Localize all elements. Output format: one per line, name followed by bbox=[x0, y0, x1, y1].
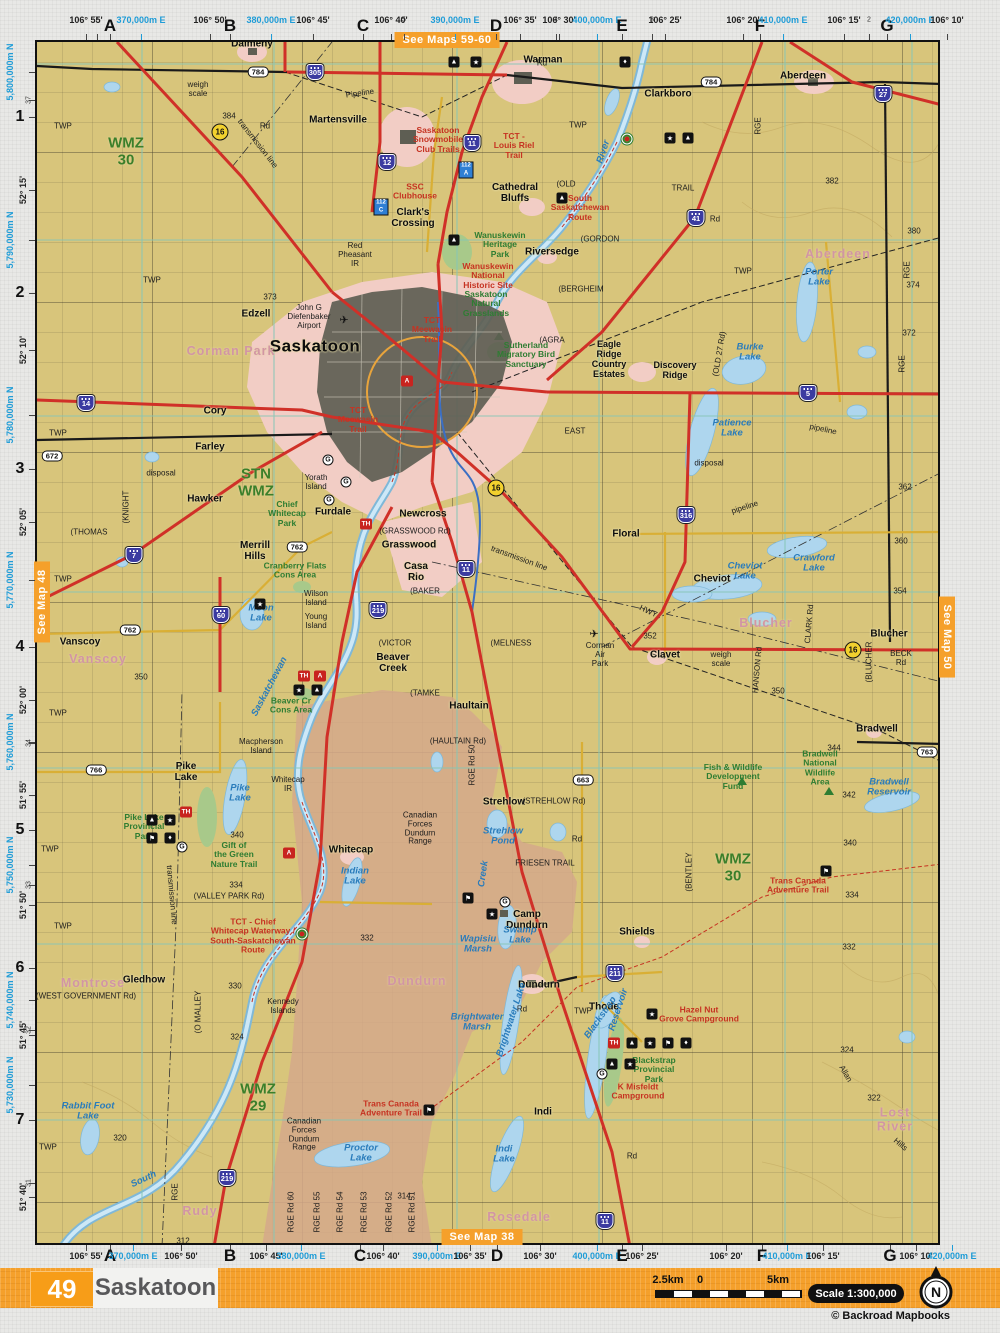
road-label: TWP bbox=[734, 268, 752, 277]
park-label: Cranberry Flats Cons Area bbox=[264, 562, 327, 581]
road-label: (HAULTAIN Rd) bbox=[430, 738, 486, 747]
road-label: TWP bbox=[49, 710, 67, 719]
grid-col-label: D bbox=[491, 1246, 503, 1266]
grid-utm-label: 410,000m E bbox=[758, 15, 807, 25]
grid-col-label: E bbox=[616, 1246, 627, 1266]
town-label: Pike Lake bbox=[175, 761, 198, 783]
poi-icon: ▲ bbox=[449, 235, 460, 246]
grid-deg-label: 52° 05' bbox=[18, 508, 28, 536]
grid-deg-label: 106° 45' bbox=[296, 15, 329, 25]
grid-utm-label: 370,000m E bbox=[116, 15, 165, 25]
road-label: (OLD bbox=[556, 181, 575, 190]
town-label: Vanscoy bbox=[60, 637, 101, 648]
grid-col-label: A bbox=[104, 1246, 116, 1266]
region-label: Vanscoy bbox=[69, 653, 127, 667]
grid-col-label: B bbox=[224, 1246, 236, 1266]
grid-col-label: E bbox=[616, 16, 627, 36]
road-label: TWP bbox=[54, 923, 72, 932]
grid-deg-label: 106° 40' bbox=[366, 1251, 399, 1261]
highway-shield-11: 11 bbox=[464, 135, 481, 151]
wmz-label: STN WMZ bbox=[238, 467, 274, 500]
trailhead-icon: A bbox=[314, 671, 326, 682]
town-label: Indi bbox=[534, 1107, 552, 1118]
grid-deg-label: 106° 25' bbox=[648, 15, 681, 25]
see-map-link-right[interactable]: See Map 50 bbox=[939, 597, 955, 678]
wmz-label: WMZ 29 bbox=[240, 1082, 276, 1115]
road-label: (AGRA bbox=[539, 337, 564, 346]
grid-utm-label: 5,750,000m N bbox=[5, 836, 15, 893]
num-label: 380 bbox=[907, 228, 920, 237]
water-label: Indian Lake bbox=[341, 867, 369, 888]
tct-marker-icon bbox=[296, 928, 309, 941]
wmz-label: WMZ 30 bbox=[108, 136, 144, 169]
poi-icon: ⚑ bbox=[147, 833, 158, 844]
road-label: weigh scale bbox=[711, 651, 732, 669]
road-label: RGE Rd 53 bbox=[361, 1192, 370, 1233]
num-label: 334 bbox=[229, 882, 242, 891]
trailhead-icon: A bbox=[283, 848, 295, 859]
poi-icon: ★ bbox=[625, 1059, 636, 1070]
scalebar-label-right: 5km bbox=[767, 1274, 789, 1286]
road-label: (BERGHEIM bbox=[558, 286, 603, 295]
road-label: (O MALLEY bbox=[195, 991, 204, 1034]
scale-bar bbox=[655, 1290, 802, 1298]
highway-shield-16: 16 bbox=[488, 480, 505, 497]
trail-label: TCT Meewasin Trail bbox=[338, 406, 378, 434]
town-label: Haultain bbox=[449, 701, 488, 712]
townsm-label: Discovery Ridge bbox=[653, 361, 696, 381]
water-label: Porter Lake bbox=[805, 268, 833, 289]
road-label: (WEST GOVERNMENT Rd) bbox=[36, 993, 136, 1002]
poi-icon: ★ bbox=[645, 1038, 656, 1049]
road-label: (VICTOR bbox=[379, 640, 412, 649]
grid-deg-label: 51° 50' bbox=[18, 891, 28, 919]
road-label: RGE bbox=[904, 261, 913, 278]
north-letter: N bbox=[931, 1284, 941, 1300]
num-label: 332 bbox=[842, 944, 855, 953]
margin-top: 106° 55'A370,000m E106° 50'B380,000m E10… bbox=[0, 0, 1000, 40]
poi-icon: ★ bbox=[294, 685, 305, 696]
margin-bottom: 106° 55'A370,000m E106° 50'B106° 45'380,… bbox=[0, 1245, 1000, 1268]
grid-sm-label: 5 bbox=[402, 17, 406, 24]
road-label: Kennedy Islands bbox=[267, 998, 299, 1016]
grid-col-label: F bbox=[755, 16, 765, 36]
park-label: Bradwell National Wildlife Area bbox=[802, 749, 837, 786]
water-label: Proctor Lake bbox=[344, 1144, 378, 1165]
trailhead-icon: TH bbox=[360, 519, 372, 530]
num-label: 340 bbox=[843, 840, 856, 849]
road-label: RGE Rd 55 bbox=[314, 1192, 323, 1233]
copyright: © Backroad Mapbooks bbox=[831, 1310, 950, 1322]
park-label: Beaver Cr Cons Area bbox=[270, 697, 312, 716]
road-label: Rd bbox=[260, 123, 270, 132]
grid-col-label: G bbox=[880, 16, 893, 36]
golf-icon: G bbox=[323, 455, 334, 466]
north-compass: N bbox=[916, 1266, 956, 1310]
road-label: Hills bbox=[891, 1137, 908, 1153]
highway-shield-16: 16 bbox=[212, 124, 229, 141]
road-label: TWP bbox=[41, 846, 59, 855]
town-label: Camp Dundurn bbox=[506, 909, 548, 931]
trailhead-icon: A bbox=[401, 376, 413, 387]
grid-deg-label: 106° 15' bbox=[806, 1251, 839, 1261]
road-label: (GRASSWOOD Rd) bbox=[379, 528, 451, 537]
trail-label: Wanuskewin National Historic Site bbox=[462, 262, 513, 290]
poi-icon: ♦ bbox=[165, 833, 176, 844]
grid-utm-label: 5,760,000m N bbox=[5, 713, 15, 770]
park-label: Fish & Wildlife Development Fund bbox=[704, 763, 762, 791]
num-label: 312 bbox=[176, 1238, 189, 1245]
highway-shield-672: 672 bbox=[42, 451, 63, 462]
poi-icon: ▲ bbox=[607, 1059, 618, 1070]
road-label: RGE Rd 51 bbox=[409, 1192, 418, 1233]
grid-deg-label: 106° 55' bbox=[69, 1251, 102, 1261]
trail-label: TCT Meewasin Trail bbox=[412, 316, 452, 344]
num-label: 342 bbox=[842, 792, 855, 801]
town-label: Thode bbox=[589, 1002, 619, 1013]
grid-deg-label: 106° 30' bbox=[542, 15, 575, 25]
poi-icon: ▲ bbox=[627, 1038, 638, 1049]
grid-deg-label: 106° 10' bbox=[899, 1251, 932, 1261]
road-label: TWP bbox=[39, 1144, 57, 1153]
water-label: Moon Lake bbox=[248, 604, 273, 625]
poi-icon: ★ bbox=[165, 815, 176, 826]
road-label: Red Pheasant IR bbox=[338, 242, 372, 268]
grid-utm-label: 370,000m E bbox=[108, 1251, 157, 1261]
num-label: 322 bbox=[867, 1095, 880, 1104]
region-label: Rosedale bbox=[487, 1211, 551, 1225]
highway-shield-766: 766 bbox=[86, 765, 107, 776]
trail-label: South Saskatchewan Route bbox=[551, 194, 610, 222]
num-label: 352 bbox=[643, 633, 656, 642]
num-label: 354 bbox=[893, 588, 906, 597]
park-label: Chief Whitecap Park bbox=[268, 500, 306, 528]
grid-sm-label: 3 bbox=[650, 17, 654, 24]
road-label: Rd bbox=[710, 216, 720, 225]
water-label: Swamp Lake bbox=[503, 926, 536, 947]
region-label: Lost River bbox=[874, 1106, 917, 1134]
town-label: Beaver Creek bbox=[376, 652, 409, 674]
town-label: Farley bbox=[195, 442, 224, 453]
poi-icon: ▲ bbox=[683, 133, 694, 144]
town-label: Merrill Hills bbox=[240, 540, 270, 562]
road-label: pipeline bbox=[731, 500, 760, 517]
town-label: Clark's Crossing bbox=[391, 207, 434, 229]
town-label: Dundurn bbox=[518, 980, 560, 991]
trail-label: K Misfeldt Campground bbox=[612, 1083, 665, 1102]
grid-col-label: G bbox=[883, 1246, 896, 1266]
grid-sm-label: 32 bbox=[26, 1026, 33, 1034]
water-label: Patience Lake bbox=[712, 419, 751, 440]
poi-icon: ♦ bbox=[681, 1038, 692, 1049]
num-label: 372 bbox=[902, 330, 915, 339]
town-label: Clavet bbox=[650, 650, 680, 661]
grid-utm-label: 390,000m E bbox=[430, 15, 479, 25]
water-label: Saskatchewan bbox=[250, 656, 290, 719]
num-label: 340 bbox=[230, 832, 243, 841]
water-label: Rabbit Foot Lake bbox=[62, 1102, 115, 1123]
grid-deg-label: 51° 55' bbox=[18, 781, 28, 809]
road-label: HANSON Rd bbox=[752, 646, 765, 693]
num-label: 344 bbox=[827, 745, 840, 754]
highway-shield-784: 784 bbox=[248, 67, 269, 78]
trail-label: Saskatoon Snowmobile Club Trails bbox=[413, 126, 463, 154]
map-label-layer: DalmenyMartensvilleWarmanClarkboroAberde… bbox=[37, 42, 938, 1243]
highway-shield-305: 305 bbox=[307, 64, 324, 80]
highway-shield-784: 784 bbox=[701, 77, 722, 88]
scale-ratio: Scale 1:300,000 bbox=[815, 1288, 896, 1300]
road-label: Canadian Forces Dundurn Range bbox=[287, 1117, 321, 1152]
poi-icon: ★ bbox=[665, 133, 676, 144]
grid-sm-label: 7 bbox=[95, 17, 99, 24]
highway-shield-663: 663 bbox=[573, 775, 594, 786]
grid-deg-label: 52° 10' bbox=[18, 336, 28, 364]
poi-icon: ★ bbox=[487, 909, 498, 920]
road-label: Macpherson Island bbox=[239, 738, 283, 756]
town-label: Gledhow bbox=[123, 975, 165, 986]
grid-utm-label: 5,730,000m N bbox=[5, 1056, 15, 1113]
grid-row-label: 6 bbox=[16, 959, 25, 977]
num-label: 324 bbox=[840, 1047, 853, 1056]
road-label: RGE bbox=[899, 355, 908, 372]
highway-shield-11: 11 bbox=[597, 1213, 614, 1229]
grid-deg-label: 106° 50' bbox=[193, 15, 226, 25]
town-label: Cathedral Bluffs bbox=[492, 182, 538, 204]
grid-row-label: 1 bbox=[16, 108, 25, 126]
road-label: (THOMAS bbox=[71, 529, 108, 538]
grid-deg-label: 106° 50' bbox=[164, 1251, 197, 1261]
grid-sm-label: 31 bbox=[26, 1179, 33, 1187]
trail-label: Trans Canada Adventure Trail bbox=[767, 877, 829, 896]
road-label: TWP bbox=[143, 277, 161, 286]
highway-shield-219: 219 bbox=[219, 1170, 236, 1186]
park-label: Gift of the Green Nature Trail bbox=[211, 841, 258, 869]
town-label: Bradwell bbox=[856, 724, 898, 735]
grid-sm-label: 2 bbox=[867, 17, 871, 24]
num-label: 382 bbox=[825, 178, 838, 187]
road-label: Whitecap IR bbox=[271, 776, 304, 794]
trail-label: Trans Canada Adventure Trail bbox=[360, 1100, 422, 1119]
water-label: Indi Lake bbox=[493, 1145, 515, 1166]
road-label: (GORDON bbox=[581, 236, 620, 245]
road-label: BECK Rd bbox=[890, 650, 912, 668]
road-label: transmission line bbox=[490, 545, 549, 574]
trail-label: Hazel Nut Grove Campground bbox=[659, 1006, 739, 1025]
golf-icon: G bbox=[177, 842, 188, 853]
page-title: Saskatoon bbox=[95, 1274, 216, 1302]
town-label: Blucher bbox=[870, 629, 907, 640]
highway-shield-12: 12 bbox=[379, 154, 396, 170]
grid-utm-label: 5,790,000m N bbox=[5, 211, 15, 268]
grid-utm-label: 5,800,000m N bbox=[5, 43, 15, 100]
page-number: 49 bbox=[48, 1274, 77, 1305]
poi-icon: ⚑ bbox=[424, 1105, 435, 1116]
grid-deg-label: 52° 15' bbox=[18, 176, 28, 204]
highway-shield-5: 5 bbox=[800, 385, 817, 401]
road-label: TRAIL bbox=[672, 185, 695, 194]
trail-label: SSC Clubhouse bbox=[393, 183, 437, 202]
road-label: Rd bbox=[627, 1153, 637, 1162]
grid-deg-label: 106° 20' bbox=[709, 1251, 742, 1261]
road-label: RGE bbox=[172, 1183, 181, 1200]
town-label: Floral bbox=[612, 529, 639, 540]
park-label: Saskatoon Natural Grasslands bbox=[463, 290, 509, 318]
poi-icon: ★ bbox=[647, 1009, 658, 1020]
trail-label: TCT - Chief Whitecap Waterway / South-Sa… bbox=[210, 917, 296, 954]
water-label: Burke Lake bbox=[737, 343, 764, 364]
scalebar-label-zero: 0 bbox=[697, 1274, 703, 1286]
water-label: Reservoir bbox=[607, 988, 630, 1033]
highway-shield-7: 7 bbox=[126, 547, 143, 563]
road-label: weigh scale bbox=[188, 81, 209, 99]
margin-left: 5,800,000m N152° 15'5,790,000m N252° 10'… bbox=[0, 0, 35, 1245]
title-panel: Saskatoon bbox=[93, 1268, 218, 1308]
num-label: 374 bbox=[906, 282, 919, 291]
road-label: HWY bbox=[638, 604, 659, 620]
num-label: 314 bbox=[397, 1193, 410, 1202]
road-label: Young Island bbox=[305, 613, 327, 631]
road-label: TWP bbox=[569, 122, 587, 131]
grid-row-label: 3 bbox=[16, 460, 25, 478]
town-label: Newcross bbox=[399, 509, 446, 520]
road-label: TWP bbox=[54, 576, 72, 585]
trailhead-icon: TH bbox=[608, 1038, 620, 1049]
grid-utm-label: 410,000m E bbox=[762, 1251, 811, 1261]
poi-icon: ★ bbox=[471, 57, 482, 68]
poi-icon: ▲ bbox=[557, 193, 568, 204]
road-label: TWP bbox=[574, 1008, 592, 1017]
region-label: Rudy bbox=[182, 1205, 217, 1219]
grid-deg-label: 106° 25' bbox=[625, 1251, 658, 1261]
town-label: Whitecap bbox=[329, 845, 373, 856]
road-label: RGE Rd 50 bbox=[469, 745, 478, 786]
grid-deg-label: 106° 35' bbox=[503, 15, 536, 25]
road-label: Rd bbox=[572, 836, 582, 845]
road-label: Allan bbox=[837, 1064, 854, 1084]
region-label: Dundurn bbox=[387, 975, 446, 989]
grid-deg-label: 106° 10' bbox=[930, 15, 963, 25]
road-label: Yorath Island bbox=[305, 474, 328, 492]
grid-utm-label: 5,780,000m N bbox=[5, 386, 15, 443]
road-label: FRIESEN TRAIL bbox=[515, 860, 574, 869]
map-page: DalmenyMartensvilleWarmanClarkboroAberde… bbox=[35, 40, 940, 1245]
grid-utm-label: 380,000m E bbox=[276, 1251, 325, 1261]
townsm-label: Eagle Ridge Country Estates bbox=[592, 340, 627, 380]
highway-shield-14: 14 bbox=[78, 395, 95, 411]
poi-icon: ⚑ bbox=[821, 866, 832, 877]
road-label: (BENTLEY bbox=[686, 852, 695, 891]
town-label: Cheviot bbox=[694, 574, 731, 585]
see-map-link-left[interactable]: See Map 48 bbox=[34, 562, 50, 643]
townlg-label: Saskatoon bbox=[270, 338, 360, 357]
water-label: Cheviot Lake bbox=[728, 562, 763, 583]
num-label: 330 bbox=[228, 983, 241, 992]
trailhead-icon: TH bbox=[180, 807, 192, 818]
grid-deg-label: 106° 45' bbox=[249, 1251, 282, 1261]
poi-icon: ⚑ bbox=[463, 893, 474, 904]
town-label: Furdale bbox=[315, 507, 351, 518]
wmz-label: WMZ 30 bbox=[715, 852, 751, 885]
grid-deg-label: 51° 45' bbox=[18, 1021, 28, 1049]
water-label: Strehlow Pond bbox=[483, 827, 523, 848]
water-label: Blackstrap bbox=[583, 995, 619, 1041]
tct-marker-icon bbox=[621, 133, 634, 146]
road-label: (MELNESS bbox=[491, 640, 532, 649]
highway-shield-16: 16 bbox=[845, 642, 862, 659]
water-label: Brightwater Lake bbox=[495, 982, 529, 1059]
grid-sm-label: 33 bbox=[26, 881, 33, 889]
road-label: (BAKER bbox=[410, 588, 440, 597]
grid-utm-label: 400,000m E bbox=[572, 15, 621, 25]
water-label: Wapisiu Marsh bbox=[460, 935, 496, 956]
water-label: Brightwater Marsh bbox=[451, 1013, 504, 1034]
airport-icon: ✈ bbox=[589, 628, 598, 641]
road-label: RGE Rd 54 bbox=[337, 1192, 346, 1233]
north-arrow-icon bbox=[931, 1266, 941, 1276]
airport-icon: ✈ bbox=[339, 314, 348, 327]
highway-shield-211: 211 bbox=[607, 965, 624, 981]
grid-utm-label: 5,770,000m N bbox=[5, 551, 15, 608]
road-label: Canadian Forces Dundurn Range bbox=[403, 811, 437, 846]
town-label: Edzell bbox=[242, 309, 271, 320]
water-label: Pike Lake bbox=[229, 784, 251, 805]
grid-utm-label: 420,000m E bbox=[885, 15, 934, 25]
grid-col-label: C bbox=[357, 16, 369, 36]
see-maps-link-top[interactable]: See Maps 59-60 bbox=[395, 32, 500, 48]
num-label: 320 bbox=[113, 1135, 126, 1144]
poi-icon: ▲ bbox=[449, 57, 460, 68]
road-label: RGE Rd 52 bbox=[386, 1192, 395, 1233]
page-number-badge: 49 bbox=[30, 1271, 94, 1307]
grid-deg-label: 106° 55' bbox=[69, 15, 102, 25]
highway-shield-60: 60 bbox=[213, 607, 230, 623]
grid-col-label: F bbox=[757, 1246, 767, 1266]
grid-col-label: A bbox=[104, 16, 116, 36]
scalebar-label-left: 2.5km bbox=[652, 1274, 683, 1286]
road-label: RGE Rd 60 bbox=[288, 1192, 297, 1233]
road-label: John G Diefenbaker Airport bbox=[287, 304, 330, 330]
grid-sm-label: 37 bbox=[26, 96, 33, 104]
highway-shield-112C: 112 C bbox=[374, 199, 389, 216]
num-label: 324 bbox=[230, 1034, 243, 1043]
golf-icon: G bbox=[341, 477, 352, 488]
grid-deg-label: 106° 40' bbox=[374, 15, 407, 25]
road-label: CLARK Rd bbox=[804, 604, 816, 644]
grid-sm-label: 34 bbox=[26, 739, 33, 747]
poi-icon: ★ bbox=[255, 599, 266, 610]
road-label: (OLD 27 Rd) bbox=[712, 331, 729, 377]
grid-row-label: 2 bbox=[16, 284, 25, 302]
grid-deg-label: 106° 30' bbox=[523, 1251, 556, 1261]
region-label: Corman Park bbox=[187, 345, 276, 359]
water-label: Crawford Lake bbox=[793, 554, 835, 575]
road-label: Pipeline bbox=[345, 88, 374, 101]
highway-shield-762: 762 bbox=[120, 625, 141, 636]
poi-icon: ♦ bbox=[620, 57, 631, 68]
num-label: 362 bbox=[898, 484, 911, 493]
see-map-link-bottom[interactable]: See Map 38 bbox=[442, 1229, 523, 1245]
num-label: 373 bbox=[263, 294, 276, 303]
golf-icon: G bbox=[500, 897, 511, 908]
park-label: Blackstrap Provincial Park bbox=[632, 1056, 675, 1084]
water-label: South bbox=[130, 1170, 159, 1191]
poi-icon: ▲ bbox=[312, 685, 323, 696]
grid-deg-label: 106° 20' bbox=[726, 15, 759, 25]
road-label: Rd bbox=[517, 1006, 527, 1015]
grid-deg-label: 51° 40' bbox=[18, 1183, 28, 1211]
grid-utm-label: 380,000m E bbox=[246, 15, 295, 25]
road-label: TWP bbox=[49, 430, 67, 439]
